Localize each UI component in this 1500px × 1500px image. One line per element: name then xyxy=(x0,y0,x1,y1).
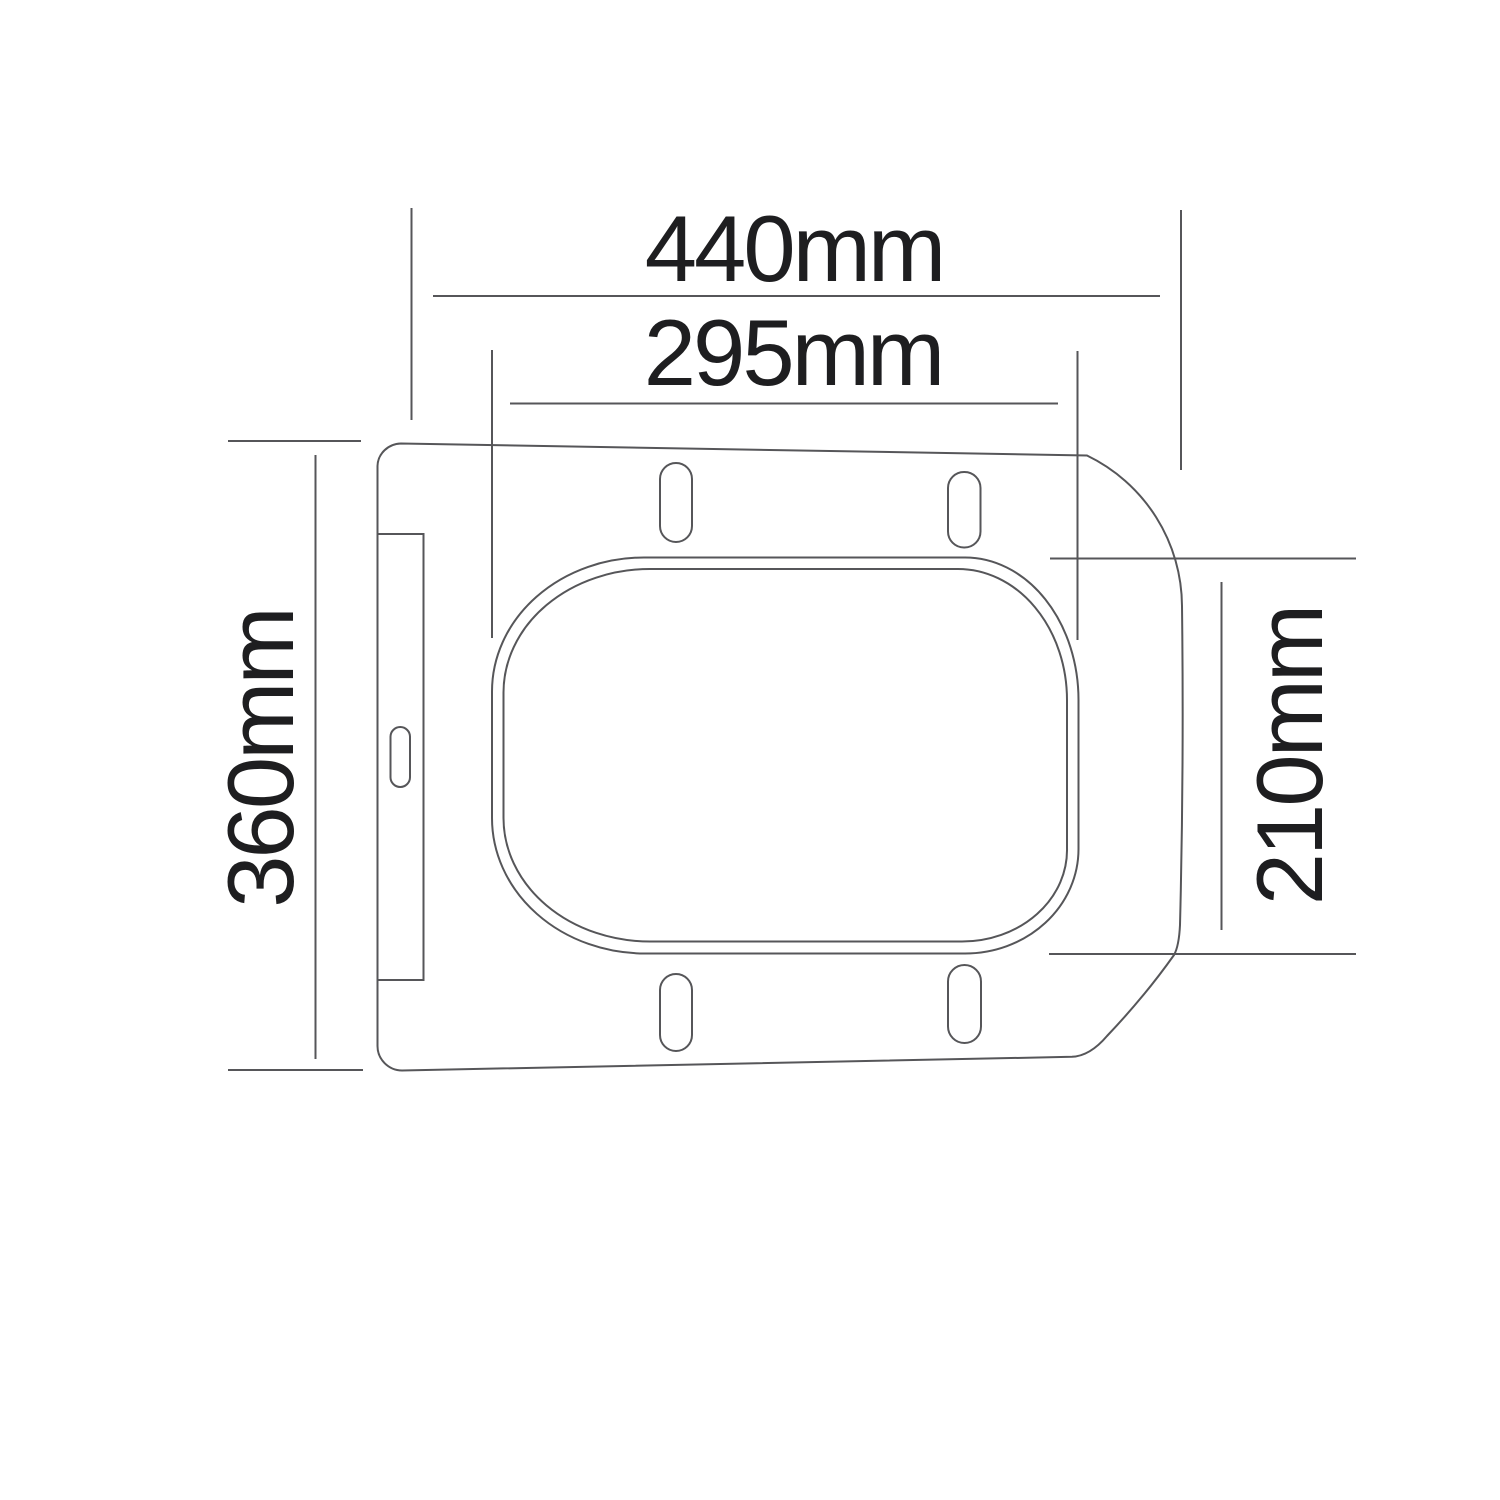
svg-text:295mm: 295mm xyxy=(644,300,942,405)
svg-text:440mm: 440mm xyxy=(645,196,943,301)
svg-text:210mm: 210mm xyxy=(1237,607,1342,905)
svg-text:360mm: 360mm xyxy=(208,609,313,907)
